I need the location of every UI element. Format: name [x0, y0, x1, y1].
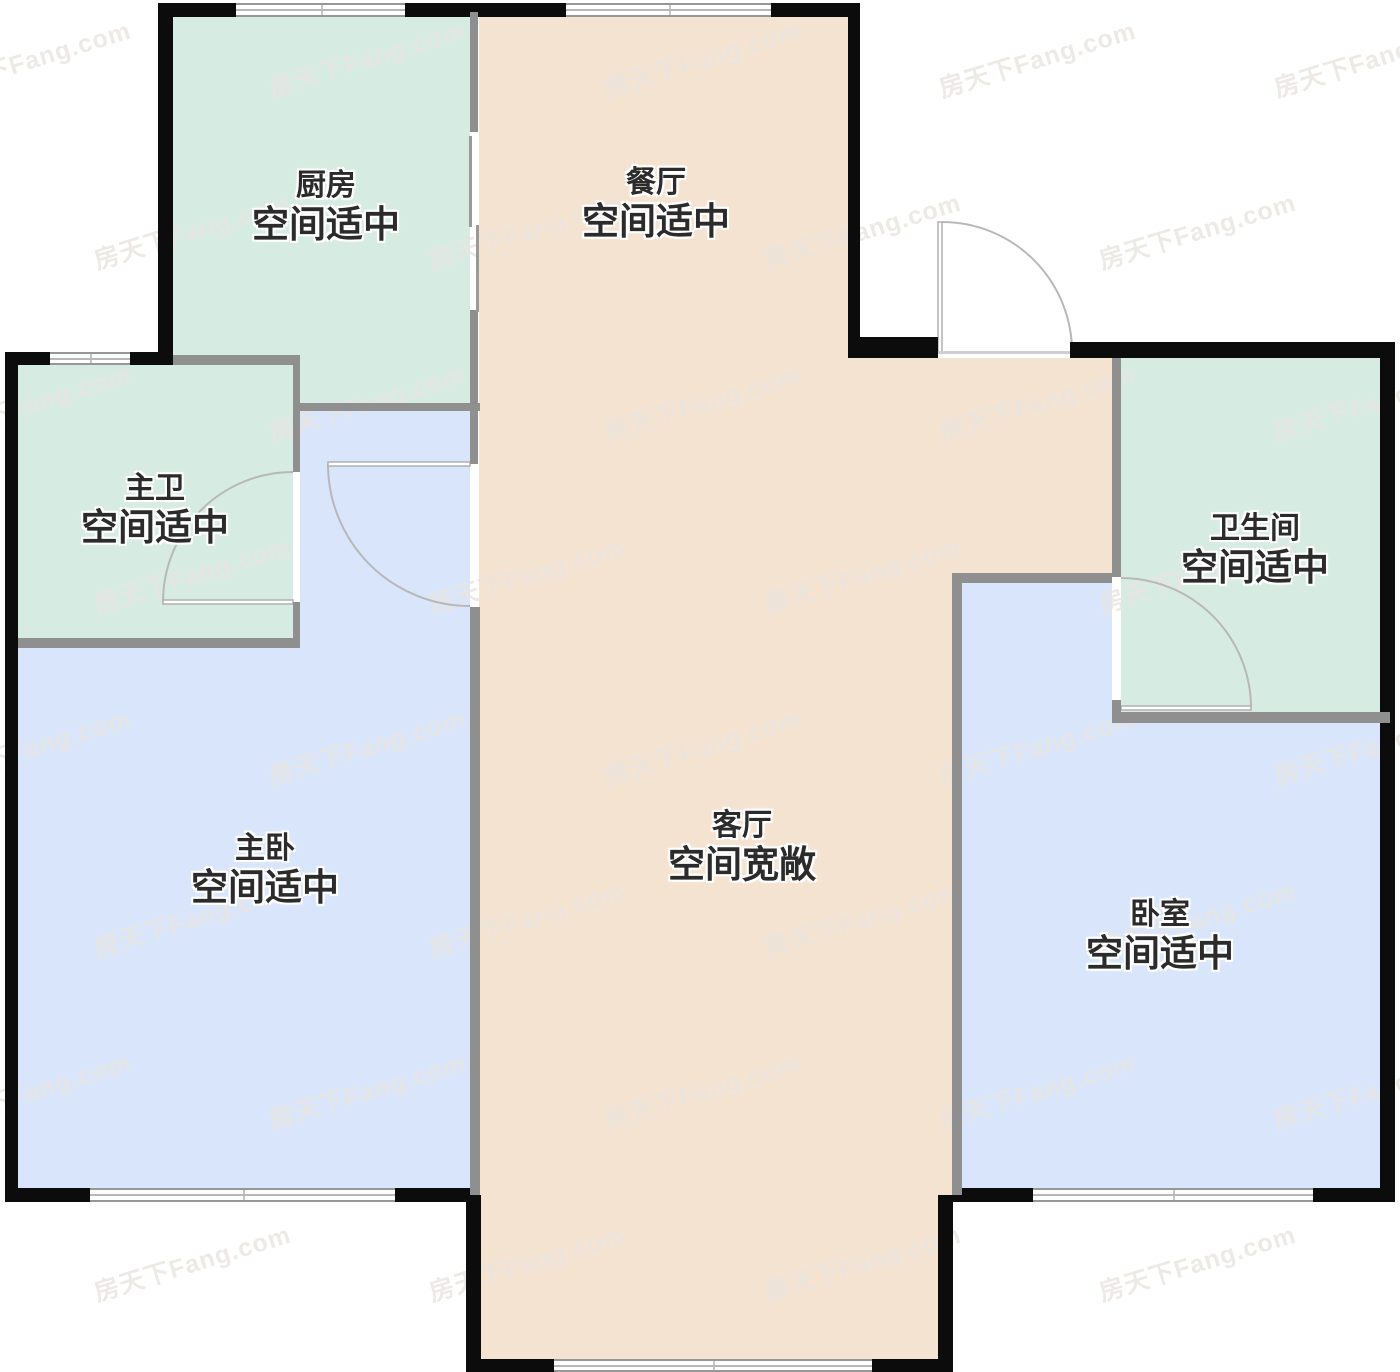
living-name: 客厅 — [668, 808, 816, 844]
label-kitchen: 厨房 空间适中 — [252, 168, 400, 246]
label-dining: 餐厅 空间适中 — [582, 165, 730, 243]
label-layer: 厨房 空间适中 餐厅 空间适中 主卫 空间适中 卫生间 空间适中 主卧 空间适中… — [0, 0, 1400, 1372]
label-living: 客厅 空间宽敞 — [668, 808, 816, 886]
master-bath-name: 主卫 — [81, 471, 229, 507]
label-master-bath: 主卫 空间适中 — [81, 471, 229, 549]
master-bedroom-status: 空间适中 — [191, 867, 339, 909]
kitchen-status: 空间适中 — [252, 204, 400, 246]
label-bathroom: 卫生间 空间适中 — [1181, 511, 1329, 589]
bathroom-name: 卫生间 — [1181, 511, 1329, 547]
bedroom-name: 卧室 — [1086, 897, 1234, 933]
bedroom-status: 空间适中 — [1086, 933, 1234, 975]
master-bedroom-name: 主卧 — [191, 831, 339, 867]
dining-name: 餐厅 — [582, 165, 730, 201]
label-master-bedroom: 主卧 空间适中 — [191, 831, 339, 909]
floor-plan: 房天下Fang.com房天下Fang.com房天下Fang.com房天下Fang… — [0, 0, 1400, 1372]
master-bath-status: 空间适中 — [81, 507, 229, 549]
label-bedroom: 卧室 空间适中 — [1086, 897, 1234, 975]
kitchen-name: 厨房 — [252, 168, 400, 204]
dining-status: 空间适中 — [582, 201, 730, 243]
bathroom-status: 空间适中 — [1181, 547, 1329, 589]
living-status: 空间宽敞 — [668, 844, 816, 886]
